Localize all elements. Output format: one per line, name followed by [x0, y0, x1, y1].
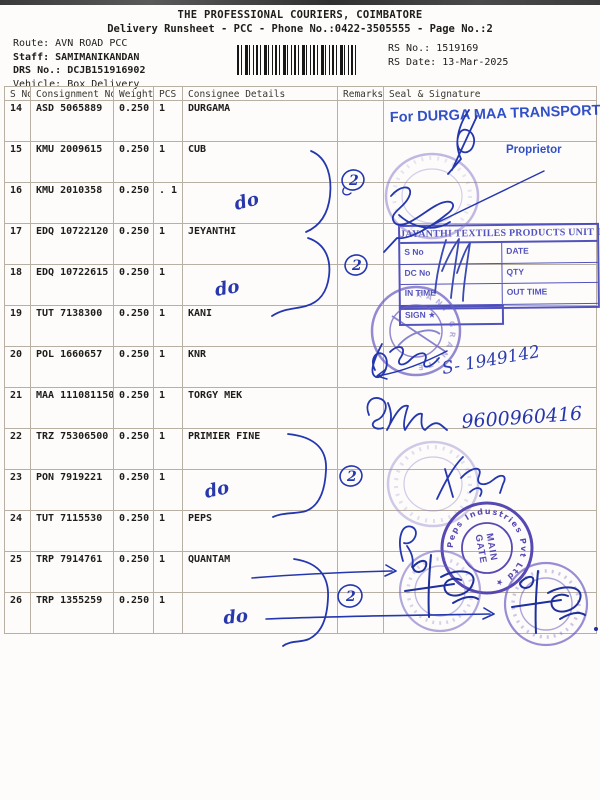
table-row: 21MAA 1110811500.2501TORGY MEK — [5, 388, 597, 429]
cell-consignee — [183, 183, 338, 224]
cell-consignment: KMU 2009615 — [31, 142, 114, 183]
cell-consignee: TORGY MEK — [183, 388, 338, 429]
document-title: THE PROFESSIONAL COURIERS, COIMBATORE — [0, 9, 600, 21]
cell-consignment: TRP 7914761 — [31, 552, 114, 593]
cell-seal — [384, 429, 597, 470]
cell-consignee: KANI — [183, 306, 338, 347]
cell-weight: 0.250 — [114, 470, 154, 511]
cell-weight: 0.250 — [114, 429, 154, 470]
cell-weight: 0.250 — [114, 388, 154, 429]
jayanthi-textiles-stamp: JAYANTHI TEXTILES PRODUCTS UNIT II S No … — [398, 223, 600, 310]
cell-consignment: EDQ 10722615 — [31, 265, 114, 306]
table-row: 23PON 79192210.2501 — [5, 470, 597, 511]
table-row: 25TRP 79147610.2501QUANTAM — [5, 552, 597, 593]
cell-consignment: EDQ 10722120 — [31, 224, 114, 265]
jayanthi-qty-label: QTY — [502, 262, 597, 282]
drs-label: DRS No.: — [13, 65, 61, 76]
cell-weight: 0.250 — [114, 224, 154, 265]
cell-consignee: KNR — [183, 347, 338, 388]
scanned-delivery-runsheet: THE PROFESSIONAL COURIERS, COIMBATORE De… — [0, 0, 600, 800]
staff-value: SAMIMANIKANDAN — [55, 52, 139, 63]
cell-consignment: TUT 7138300 — [31, 306, 114, 347]
scan-artifact-top-edge — [0, 0, 600, 5]
cell-remarks — [338, 388, 384, 429]
cell-consignee: QUANTAM — [183, 552, 338, 593]
rs-date-value: 13-Mar-2025 — [442, 57, 508, 68]
table-row: 24TUT 71155300.2501PEPS — [5, 511, 597, 552]
cell-sno: 22 — [5, 429, 31, 470]
cell-seal — [384, 470, 597, 511]
meta-block-left: Route: AVN ROAD PCC Staff: SAMIMANIKANDA… — [13, 37, 145, 91]
cell-sno: 16 — [5, 183, 31, 224]
table-row: 22TRZ 753065000.2501PRIMIER FINE — [5, 429, 597, 470]
cell-weight: 0.250 — [114, 552, 154, 593]
cell-sno: 15 — [5, 142, 31, 183]
cell-pcs: . 1 — [154, 183, 183, 224]
cell-consignee — [183, 470, 338, 511]
cell-seal — [384, 511, 597, 552]
cell-sno: 18 — [5, 265, 31, 306]
cell-remarks — [338, 552, 384, 593]
cell-sno: 26 — [5, 593, 31, 634]
cell-remarks — [338, 511, 384, 552]
col-pcs: PCS — [154, 87, 183, 101]
document-subtitle: Delivery Runsheet - PCC - Phone No.:0422… — [0, 23, 600, 35]
route-value: AVN ROAD PCC — [55, 38, 127, 49]
cell-remarks — [338, 183, 384, 224]
cell-pcs: 1 — [154, 388, 183, 429]
cell-pcs: 1 — [154, 593, 183, 634]
cell-sno: 23 — [5, 470, 31, 511]
cell-remarks — [338, 470, 384, 511]
cell-consignment: TUT 7115530 — [31, 511, 114, 552]
cell-consignee — [183, 265, 338, 306]
jayanthi-stamp-row: DC No QTY — [400, 262, 597, 285]
cell-remarks — [338, 265, 384, 306]
cell-remarks — [338, 593, 384, 634]
cell-consignee: JEYANTHI — [183, 224, 338, 265]
table-row: 16KMU 20103580.250. 1 — [5, 183, 597, 224]
rs-no-label: RS No.: — [388, 43, 430, 54]
cell-sno: 14 — [5, 101, 31, 142]
cell-weight: 0.250 — [114, 593, 154, 634]
rs-date-line: RS Date: 13-Mar-2025 — [388, 56, 508, 70]
runsheet-table: S No Consignment No Weight PCS Consignee… — [4, 86, 597, 634]
col-consignment: Consignment No — [31, 87, 114, 101]
cell-pcs: 1 — [154, 265, 183, 306]
cell-weight: 0.250 — [114, 183, 154, 224]
col-sno: S No — [5, 87, 31, 101]
cell-pcs: 1 — [154, 470, 183, 511]
cell-weight: 0.250 — [114, 306, 154, 347]
table-row: 15KMU 20096150.2501CUB — [5, 142, 597, 183]
cell-consignment: POL 1660657 — [31, 347, 114, 388]
jayanthi-outtime-label: OUT TIME — [503, 283, 598, 303]
table-row: 20POL 16606570.2501KNR — [5, 347, 597, 388]
cell-consignment: MAA 111081150 — [31, 388, 114, 429]
cell-weight: 0.250 — [114, 142, 154, 183]
cell-pcs: 1 — [154, 224, 183, 265]
jayanthi-dcno-label: DC No — [400, 263, 502, 284]
cell-sno: 25 — [5, 552, 31, 593]
cell-remarks — [338, 224, 384, 265]
rs-no-value: 1519169 — [436, 43, 478, 54]
cell-seal — [384, 593, 597, 634]
jayanthi-date-label: DATE — [502, 242, 597, 262]
staff-line: Staff: SAMIMANIKANDAN — [13, 51, 145, 65]
cell-consignee: PRIMIER FINE — [183, 429, 338, 470]
cell-consignment: PON 7919221 — [31, 470, 114, 511]
cell-pcs: 1 — [154, 429, 183, 470]
cell-seal — [384, 552, 597, 593]
cell-consignee: DURGAMA — [183, 101, 338, 142]
cell-pcs: 1 — [154, 101, 183, 142]
cell-remarks — [338, 429, 384, 470]
jayanthi-intime-label: IN TIME — [401, 284, 503, 305]
cell-seal — [384, 101, 597, 142]
cell-remarks — [338, 347, 384, 388]
cell-sno: 17 — [5, 224, 31, 265]
cell-pcs: 1 — [154, 552, 183, 593]
table-row: 26TRP 13552590.2501 — [5, 593, 597, 634]
cell-consignee — [183, 593, 338, 634]
cell-consignee: PEPS — [183, 511, 338, 552]
cell-consignment: KMU 2010358 — [31, 183, 114, 224]
table-header-row: S No Consignment No Weight PCS Consignee… — [5, 87, 597, 101]
route-line: Route: AVN ROAD PCC — [13, 37, 145, 51]
cell-remarks — [338, 142, 384, 183]
jayanthi-stamp-title: JAYANTHI TEXTILES PRODUCTS UNIT II — [400, 225, 597, 244]
cell-sno: 21 — [5, 388, 31, 429]
table-row: 19TUT 71383000.2501KANI — [5, 306, 597, 347]
cell-sno: 20 — [5, 347, 31, 388]
drs-line: DRS No.: DCJB151916902 — [13, 64, 145, 78]
jayanthi-stamp-row: S No DATE — [400, 242, 597, 265]
cell-seal — [384, 183, 597, 224]
cell-weight: 0.250 — [114, 511, 154, 552]
col-seal: Seal & Signature — [384, 87, 597, 101]
cell-weight: 0.250 — [114, 347, 154, 388]
cell-consignee: CUB — [183, 142, 338, 183]
cell-weight: 0.250 — [114, 101, 154, 142]
meta-block-right: RS No.: 1519169 RS Date: 13-Mar-2025 — [388, 42, 508, 70]
jayanthi-stamp-row: IN TIME OUT TIME — [401, 283, 598, 306]
col-consignee: Consignee Details — [183, 87, 338, 101]
cell-pcs: 1 — [154, 347, 183, 388]
cell-remarks — [338, 101, 384, 142]
col-remarks: Remarks — [338, 87, 384, 101]
cell-consignment: TRP 1355259 — [31, 593, 114, 634]
drs-value: DCJB151916902 — [67, 65, 145, 76]
jayanthi-sno-label: S No — [400, 243, 502, 264]
staff-label: Staff: — [13, 52, 49, 63]
cell-remarks — [338, 306, 384, 347]
cell-consignment: ASD 5065889 — [31, 101, 114, 142]
rs-date-label: RS Date: — [388, 57, 436, 68]
cell-sno: 19 — [5, 306, 31, 347]
table-row: 14ASD 50658890.2501DURGAMA — [5, 101, 597, 142]
cell-pcs: 1 — [154, 142, 183, 183]
cell-seal — [384, 142, 597, 183]
barcode — [237, 45, 358, 75]
cell-sno: 24 — [5, 511, 31, 552]
rs-no-line: RS No.: 1519169 — [388, 42, 508, 56]
jayanthi-sign-label: SIGN ★ — [399, 305, 504, 326]
cell-weight: 0.250 — [114, 265, 154, 306]
col-weight: Weight — [114, 87, 154, 101]
cell-consignment: TRZ 75306500 — [31, 429, 114, 470]
route-label: Route: — [13, 38, 49, 49]
cell-seal — [384, 388, 597, 429]
cell-pcs: 1 — [154, 306, 183, 347]
cell-pcs: 1 — [154, 511, 183, 552]
cell-seal — [384, 347, 597, 388]
